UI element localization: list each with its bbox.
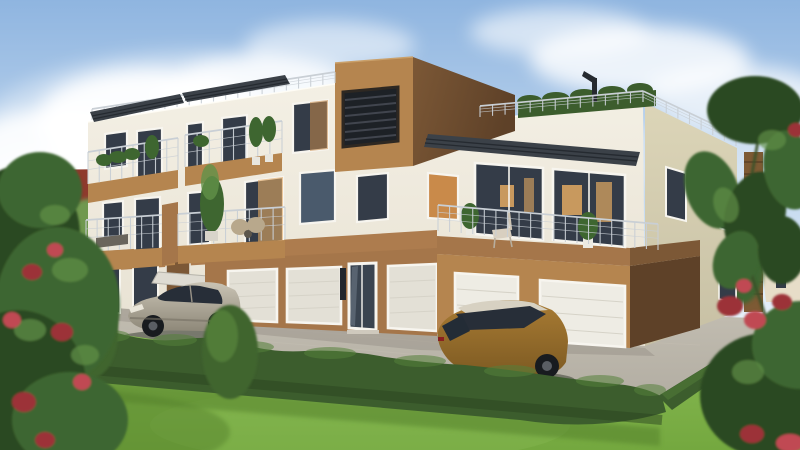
rendering-stage (0, 0, 800, 450)
sidelight (340, 268, 346, 300)
architectural-rendering (0, 0, 800, 450)
lit-interior (310, 100, 328, 151)
window (300, 170, 335, 224)
window (103, 201, 123, 239)
louver-vent (343, 87, 398, 147)
bush-center (202, 305, 258, 399)
entrance-step (347, 330, 379, 334)
stairwell-window (357, 173, 388, 222)
taillight (438, 337, 444, 341)
privacy-screen (162, 202, 178, 266)
side-window (666, 167, 686, 221)
